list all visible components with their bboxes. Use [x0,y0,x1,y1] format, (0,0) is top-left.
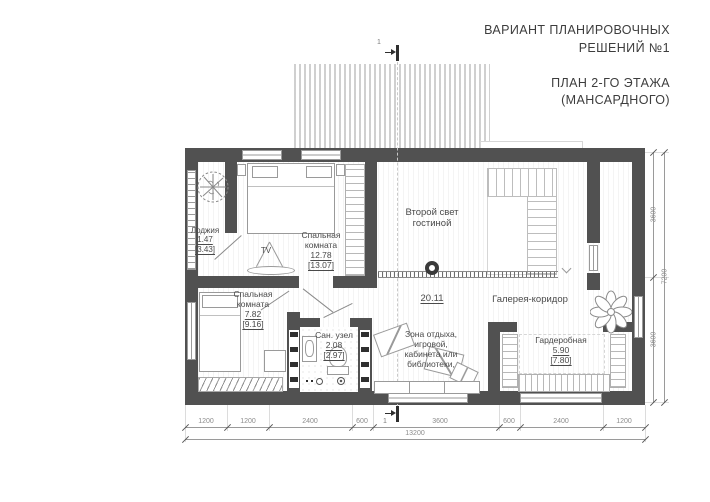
room-name: кабинета или [396,349,466,359]
gallery-area-label: 20.11 [412,293,452,304]
room-area-total: [3.43] [184,245,226,254]
room-area: 5.90 [526,345,596,355]
dim-label: 3600 [651,197,658,233]
room-name: Сан. узел [308,330,360,340]
cabinet-divider [444,382,445,393]
floor-dot [311,380,313,382]
room-name: игровой, [396,339,466,349]
flower-icon [590,290,632,339]
room-name: комната [224,299,282,309]
window [242,150,282,160]
room-label-second-light: Второй свет гостиной [400,207,464,229]
room-name: Спальная [224,289,282,299]
shelf-mark [290,332,298,337]
pillow [306,166,332,178]
room-label-gallery: Галерея-коридор [480,294,580,305]
wardrobe-rack-left [502,334,518,388]
room-label-wardrobe: Гардеробная 5.90 [7.80] [526,335,596,365]
nightstand [237,164,246,176]
dimension-line [185,427,645,428]
shelf-mark [290,347,298,352]
dim-label: 1200 [240,418,256,425]
floor-drain-icon [316,378,323,385]
window-loggia-glazing [187,170,196,270]
dim-label-total: 13200 [405,430,424,437]
wall-mid-right [333,276,377,288]
section-marker-top-label: 1 [377,39,381,46]
shelf-mark [290,377,298,382]
title-line-4: (МАНСАРДНОГО) [484,92,670,110]
room-label-bedroom-top: Спальная комната 12.78 [13.07] [295,230,347,270]
room-name: Второй свет [400,207,464,218]
closet-shelves [345,164,365,276]
room-label-lounge: Зона отдыха, игровой, кабинета или библи… [396,329,466,369]
extension-line [185,405,186,442]
title-line-3: ПЛАН 2-ГО ЭТАЖА [484,75,670,93]
room-area-total: [2.97] [308,350,360,360]
dim-label-total: 7200 [662,259,669,295]
tv-label: TV [256,246,276,255]
dim-label: 2400 [302,418,318,425]
dimension-line-total [185,439,645,440]
extension-line [645,405,646,442]
wall-right [632,148,645,405]
room-area: 2.08 [308,340,360,350]
room-name: Гардеробная [526,335,596,345]
floor-drain-icon [337,377,345,385]
pillow [252,166,278,178]
dim-label: 1200 [198,418,214,425]
tv-console [247,266,295,275]
room-name: комната [295,240,347,250]
floor-dot [306,380,308,382]
wall-stair-pier [587,273,600,290]
window [634,296,643,338]
title-line-2: РЕШЕНИЙ №1 [484,40,670,58]
room-area: 1.47 [184,235,226,244]
room-name: Зона отдыха, [396,329,466,339]
room-area: 7.82 [224,309,282,319]
wall-bath-top-left [300,318,320,327]
shelf-mark [361,362,369,367]
nightstand [336,164,345,176]
shelf-mark [361,377,369,382]
room-label-loggia: Лоджия 1.47 [3.43] [184,226,226,254]
wall-bedroom-top [365,162,377,278]
dim-label: 1200 [616,418,632,425]
wall-mid-left [185,276,299,288]
stairs-landing [487,196,528,275]
room-area-total: [13.07] [295,260,347,270]
room-name: гостиной [400,218,464,229]
blanket-line [248,186,334,187]
room-name: библиотеки, [396,359,466,369]
room-area: 12.78 [295,250,347,260]
desk [264,350,286,372]
room-label-bathroom: Сан. узел 2.08 [2.97] [308,330,360,360]
dim-label: 3600 [651,322,658,358]
room-name: Лоджия [184,226,226,235]
open-wardrobe-hangers [198,377,283,392]
wardrobe-rack-right [610,334,626,388]
plant-icon [196,170,230,209]
window-stair [589,245,598,271]
window [187,302,196,360]
window [301,150,341,160]
toilet-tank [327,366,349,375]
shelf-mark [361,332,369,337]
wall-wardrobe-left [488,322,500,392]
section-marker-top-bar [396,45,399,61]
wardrobe-rack-bottom [518,374,610,392]
shelf-mark [290,362,298,367]
title-line-1: ВАРИАНТ ПЛАНИРОВОЧНЫХ [484,22,670,40]
roof-hatch [294,64,490,148]
room-name: Спальная [295,230,347,240]
window [520,393,602,403]
title-block: ВАРИАНТ ПЛАНИРОВОЧНЫХ РЕШЕНИЙ №1 ПЛАН 2-… [484,22,670,110]
cabinet-divider [409,382,410,393]
window [388,393,468,403]
shelf-mark [361,347,369,352]
room-label-bedroom-bottom: Спальная комната 7.82 [9.16] [224,289,282,329]
stairs-lower-run [527,196,557,275]
room-area-total: [7.80] [526,355,596,365]
dim-label: 2400 [553,418,569,425]
dim-label: 600 [503,418,515,425]
dim-label: 600 [356,418,368,425]
dim-label: 3600 [432,418,448,425]
floor-plan-sheet: ВАРИАНТ ПЛАНИРОВОЧНЫХ РЕШЕНИЙ №1 ПЛАН 2-… [0,0,710,502]
room-area-total: [9.16] [224,319,282,329]
void-railing [378,271,558,278]
section-marker-bottom-bar [396,406,399,422]
stairs-upper-run [487,168,557,197]
wall-stair-side [587,162,600,243]
section-marker-bottom-label: 1 [383,418,387,425]
column [425,261,439,275]
